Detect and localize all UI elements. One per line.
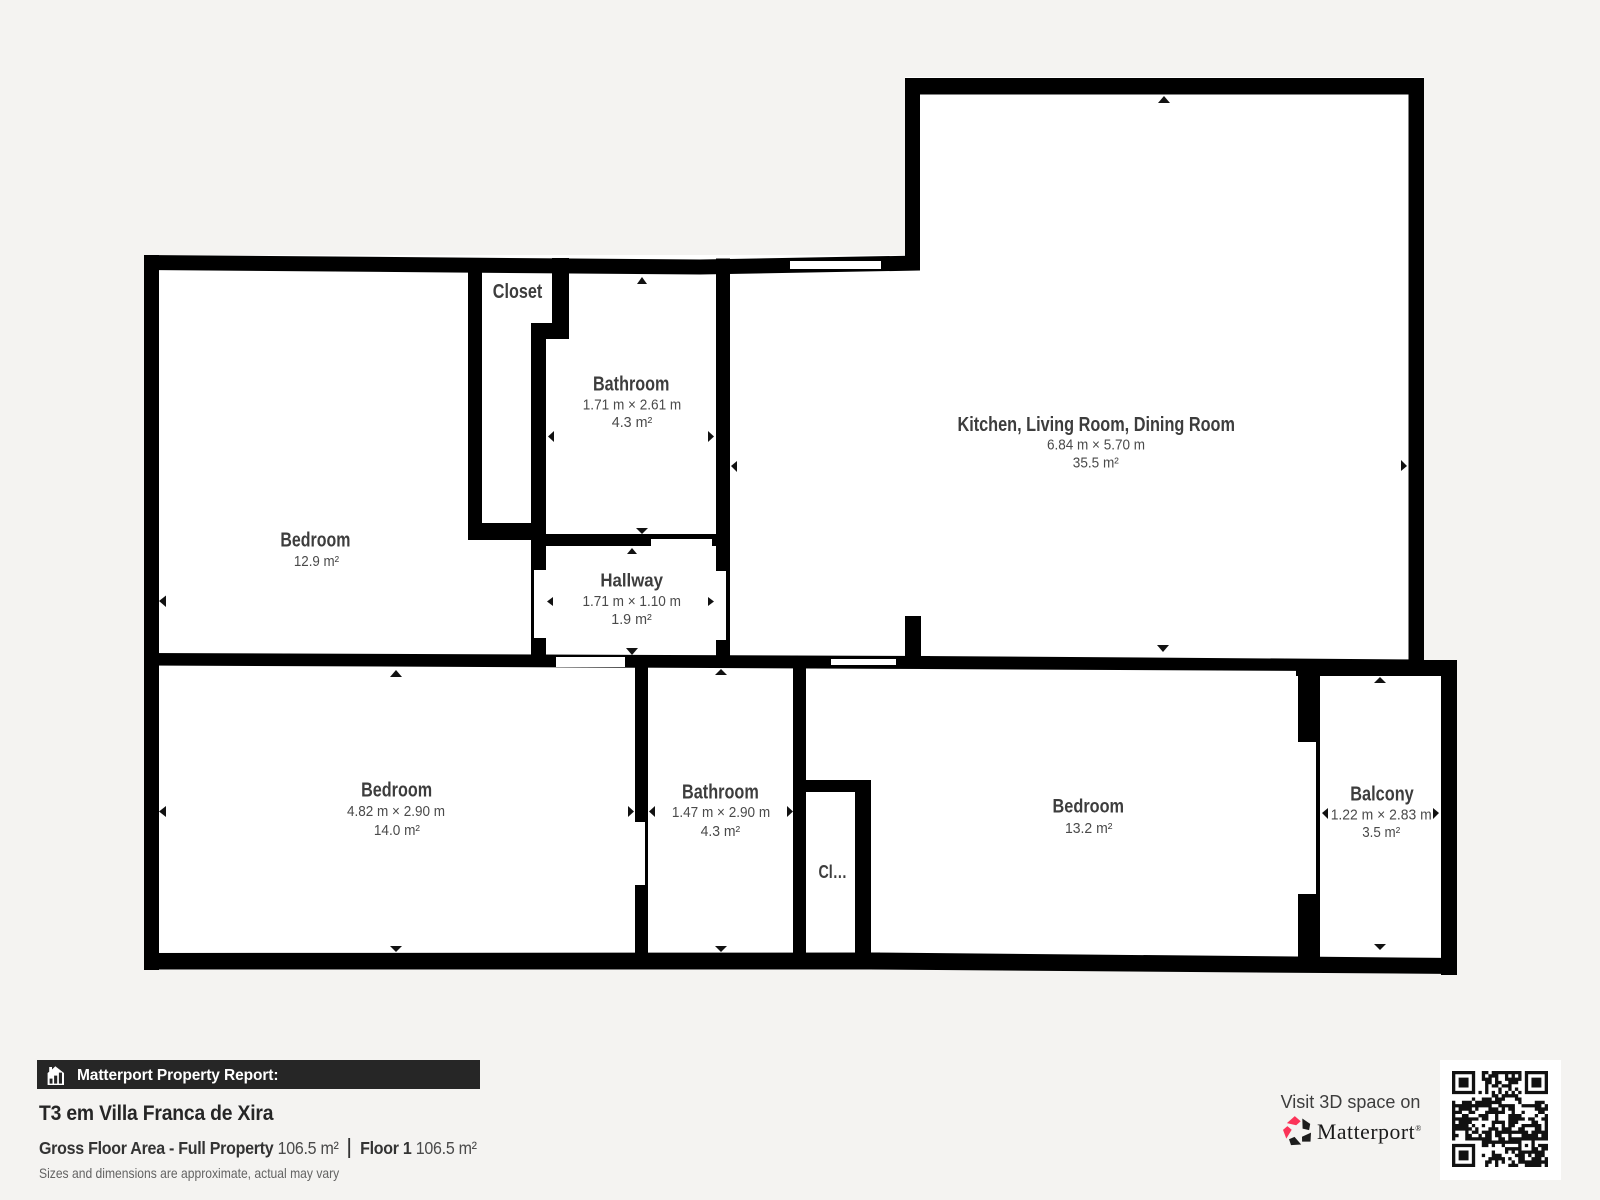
svg-text:1.71 m × 1.10 m: 1.71 m × 1.10 m [582,594,681,610]
svg-text:1.9 m²: 1.9 m² [611,612,652,628]
svg-text:4.82 m × 2.90 m: 4.82 m × 2.90 m [347,804,445,820]
svg-text:Hallway: Hallway [600,571,663,591]
svg-text:Balcony: Balcony [1350,784,1414,806]
svg-text:Bedroom: Bedroom [280,530,350,552]
svg-text:4.3 m²: 4.3 m² [612,415,653,431]
svg-text:13.2 m²: 13.2 m² [1065,821,1113,837]
svg-text:35.5 m²: 35.5 m² [1073,455,1119,471]
svg-text:4.3 m²: 4.3 m² [701,824,741,840]
svg-text:Closet: Closet [493,281,543,303]
svg-text:6.84 m × 5.70 m: 6.84 m × 5.70 m [1047,437,1145,453]
svg-text:3.5 m²: 3.5 m² [1362,825,1400,841]
svg-text:Bathroom: Bathroom [593,373,669,395]
svg-text:1.22 m × 2.83 m: 1.22 m × 2.83 m [1331,808,1432,824]
svg-text:1.47 m × 2.90 m: 1.47 m × 2.90 m [672,805,770,821]
svg-text:Kitchen, Living Room, Dining R: Kitchen, Living Room, Dining Room [957,414,1235,436]
svg-text:Bedroom: Bedroom [1053,796,1125,817]
svg-text:Bathroom: Bathroom [682,782,759,804]
svg-text:Cl…: Cl… [818,862,847,882]
svg-text:14.0 m²: 14.0 m² [374,823,420,839]
svg-text:Bedroom: Bedroom [361,780,432,802]
svg-text:1.71 m × 2.61 m: 1.71 m × 2.61 m [583,398,682,414]
svg-text:12.9 m²: 12.9 m² [294,554,339,570]
